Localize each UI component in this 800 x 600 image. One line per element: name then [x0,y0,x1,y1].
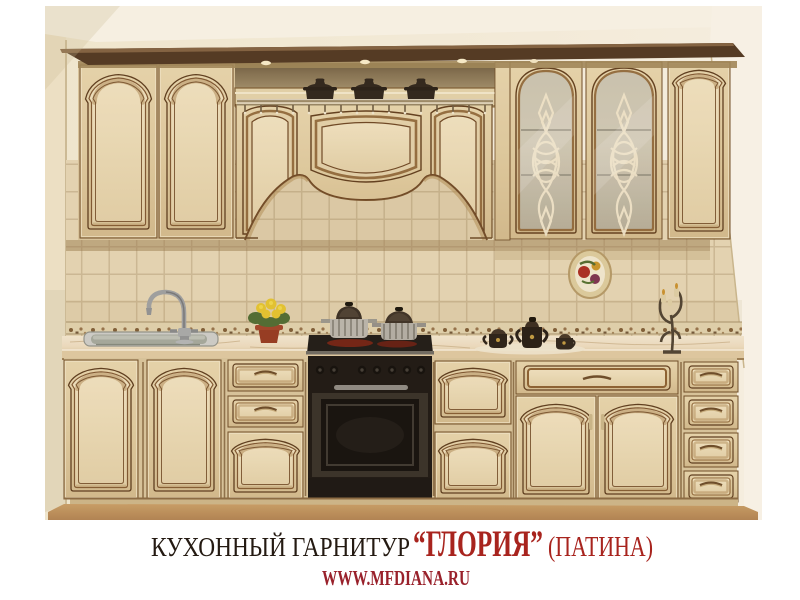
svg-text:КУХОННЫЙ ГАРНИТУР: КУХОННЫЙ ГАРНИТУР [151,532,410,562]
svg-text:(ПАТИНА): (ПАТИНА) [548,532,653,563]
svg-text:WWW.MFDIANA.RU: WWW.MFDIANA.RU [322,566,470,590]
svg-text:“ГЛОРИЯ”: “ГЛОРИЯ” [413,524,543,565]
